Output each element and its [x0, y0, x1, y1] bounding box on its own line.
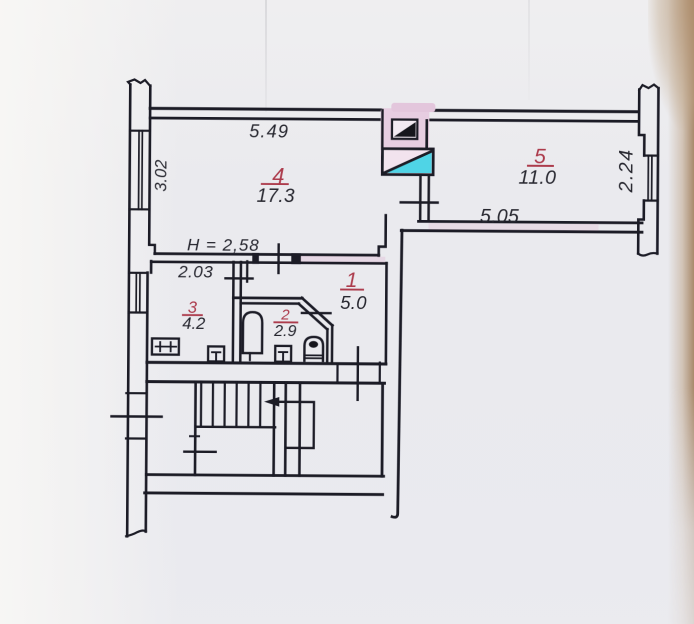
svg-text:5.0: 5.0: [340, 292, 367, 313]
svg-text:4.2: 4.2: [182, 315, 205, 333]
svg-text:3.02: 3.02: [152, 160, 170, 192]
svg-text:2.03: 2.03: [177, 262, 213, 281]
svg-text:1: 1: [346, 269, 358, 292]
svg-text:H = 2,58: H = 2,58: [187, 235, 260, 255]
svg-text:5.49: 5.49: [249, 121, 289, 141]
svg-text:2.9: 2.9: [273, 323, 296, 340]
svg-text:2: 2: [280, 307, 290, 324]
svg-text:11.0: 11.0: [518, 167, 556, 189]
svg-text:17.3: 17.3: [257, 186, 295, 207]
svg-text:5.05: 5.05: [480, 205, 519, 227]
svg-text:2.24: 2.24: [615, 148, 637, 193]
